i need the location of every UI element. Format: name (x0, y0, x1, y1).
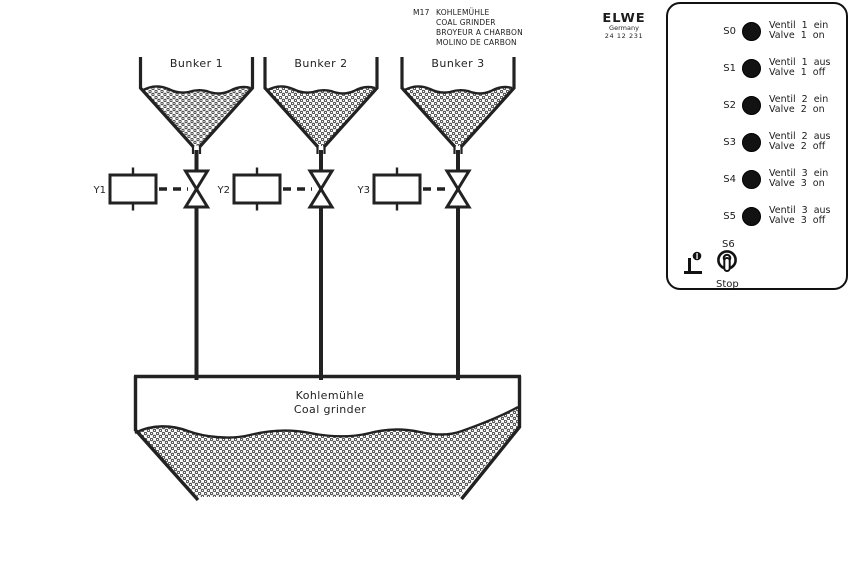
button-caption: Ventil 1 ein Valve 1 on (769, 21, 828, 42)
bunker-fill (404, 86, 512, 146)
logo-country: Germany (601, 25, 647, 32)
grinder-label-de: Kohlemühle (296, 389, 365, 402)
manufacturer-block: ELWE Germany 24 12 231 (601, 13, 647, 40)
module-titles: KOHLEMÜHLE COAL GRINDER BROYEUR A CHARBO… (436, 8, 523, 48)
button-id-label: S4 (714, 174, 736, 185)
valve-symbol-y3 (447, 189, 469, 207)
button-id-label: S3 (714, 137, 736, 148)
valve-symbol-y1 (186, 189, 208, 207)
bunker-1: Bunker 1 (141, 57, 253, 154)
push-button-s2[interactable] (742, 96, 761, 115)
bunker-3: Bunker 3 (402, 57, 514, 154)
logo-part-number: 24 12 231 (601, 32, 647, 40)
grinder-fill (136, 407, 518, 497)
grinder-label-en: Coal grinder (294, 403, 366, 416)
button-caption: Ventil 2 aus Valve 2 off (769, 132, 831, 153)
toggle-switch-s6[interactable] (714, 249, 740, 279)
button-caption: Ventil 3 aus Valve 3 off (769, 206, 831, 227)
elwe-logo: ELWE (601, 13, 647, 24)
valve-assembly-y2: Y2 (217, 168, 332, 211)
bunker-fill (143, 86, 251, 146)
caption-line-en: Valve 1 on (769, 31, 828, 42)
push-button-s0[interactable] (742, 22, 761, 41)
bunker-fill (267, 86, 375, 146)
bunker-label: Bunker 2 (294, 57, 347, 70)
panel-row-s2: S2 Ventil 2 ein Valve 2 on (714, 92, 828, 118)
valve-assembly-y1: Y1 (93, 168, 208, 211)
push-button-s1[interactable] (742, 59, 761, 78)
valve-label: Y1 (93, 185, 106, 196)
caption-line-en: Valve 2 off (769, 142, 831, 153)
panel-row-s5: S5 Ventil 3 aus Valve 3 off (714, 203, 831, 229)
valve-label: Y2 (217, 185, 230, 196)
button-caption: Ventil 1 aus Valve 1 off (769, 58, 831, 79)
panel-row-s3: S3 Ventil 2 aus Valve 2 off (714, 129, 831, 155)
panel-row-s0: S0 Ventil 1 ein Valve 1 on (714, 18, 828, 44)
caption-line-en: Valve 2 on (769, 105, 828, 116)
module-designation: M17 (413, 8, 431, 48)
coal-grinder: Kohlemühle Coal grinder (134, 376, 521, 500)
push-button-s5[interactable] (742, 207, 761, 226)
title-block: M17 KOHLEMÜHLE COAL GRINDER BROYEUR A CH… (413, 8, 523, 48)
button-caption: Ventil 2 ein Valve 2 on (769, 95, 828, 116)
bunker-label: Bunker 1 (170, 57, 223, 70)
push-button-s3[interactable] (742, 133, 761, 152)
process-schematic: Bunker 1 Bunker 2 Bunker 3 Y1 (0, 0, 660, 564)
panel-row-s1: S1 Ventil 1 aus Valve 1 off (714, 55, 831, 81)
push-button-s4[interactable] (742, 170, 761, 189)
valve-assembly-y3: Y3 (357, 168, 469, 211)
valve-label: Y3 (357, 185, 370, 196)
button-id-label: S5 (714, 211, 736, 222)
caption-line-en: Valve 3 off (769, 216, 831, 227)
bunker-2: Bunker 2 (265, 57, 377, 154)
coal-grinder-trainer-screen: Bunker 1 Bunker 2 Bunker 3 Y1 (0, 0, 852, 564)
valve-symbol-y2 (310, 189, 332, 207)
title-french: BROYEUR A CHARBON (436, 28, 523, 38)
control-panel: S0 Ventil 1 ein Valve 1 on S1 Ventil 1 a… (666, 2, 848, 290)
solenoid-box-y3 (374, 175, 420, 203)
button-id-label: S1 (714, 63, 736, 74)
pushbutton-actuator-icon[interactable] (682, 247, 704, 279)
button-id-label: S0 (714, 26, 736, 37)
title-english: COAL GRINDER (436, 18, 523, 28)
title-spanish: MOLINO DE CARBON (436, 38, 523, 48)
bunker-label: Bunker 3 (431, 57, 484, 70)
panel-row-s4: S4 Ventil 3 ein Valve 3 on (714, 166, 828, 192)
button-caption: Ventil 3 ein Valve 3 on (769, 169, 828, 190)
title-german: KOHLEMÜHLE (436, 8, 523, 18)
solenoid-box-y1 (110, 175, 156, 203)
caption-line-en: Valve 1 off (769, 68, 831, 79)
caption-line-en: Valve 3 on (769, 179, 828, 190)
button-id-label: S2 (714, 100, 736, 111)
solenoid-box-y2 (234, 175, 280, 203)
stop-switch-label: Stop (716, 279, 739, 290)
